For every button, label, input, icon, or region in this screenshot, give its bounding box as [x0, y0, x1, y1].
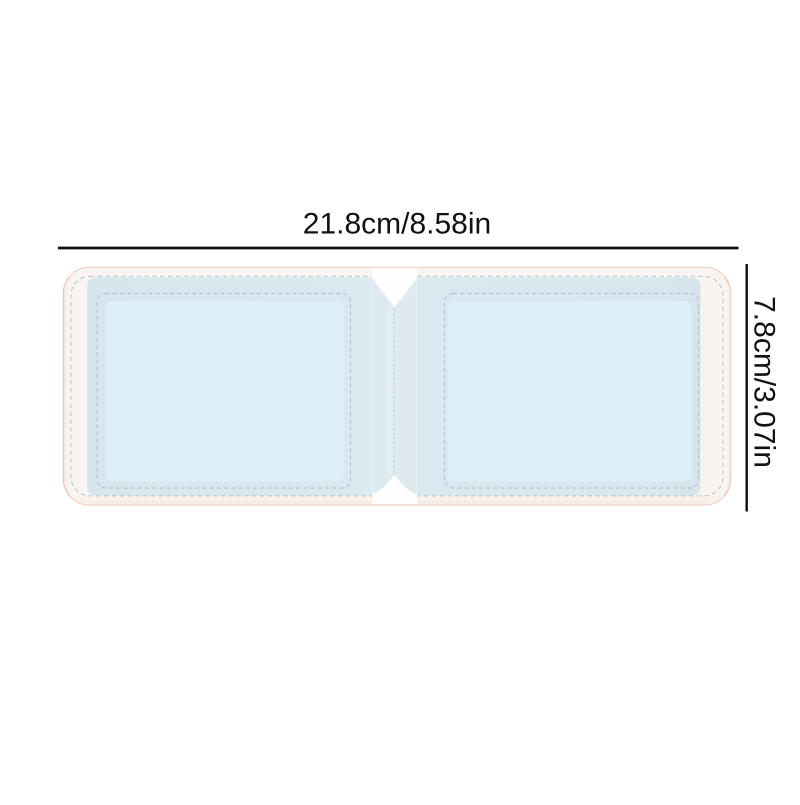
svg-text:21.8cm/8.58in: 21.8cm/8.58in	[303, 208, 491, 241]
svg-text:7.8cm/3.07in: 7.8cm/3.07in	[748, 296, 781, 468]
